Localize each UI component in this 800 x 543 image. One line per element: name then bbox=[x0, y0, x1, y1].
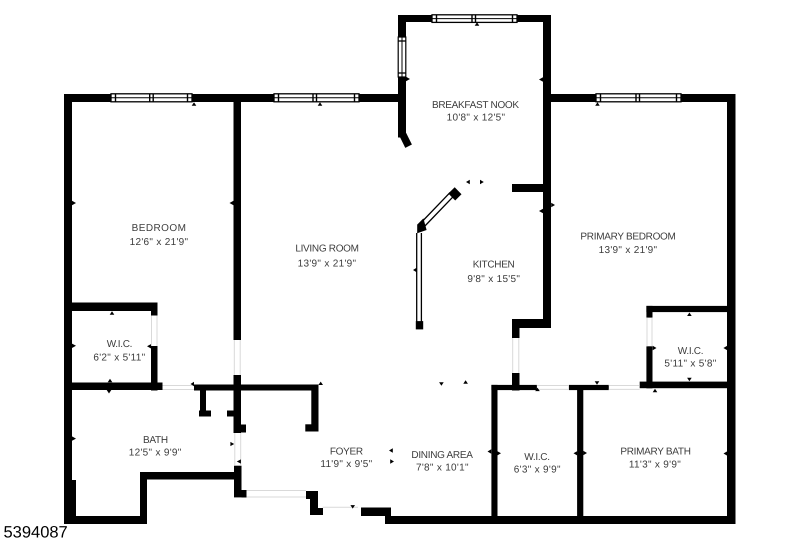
svg-text:BATH: BATH bbox=[143, 435, 168, 446]
svg-text:KITCHEN: KITCHEN bbox=[473, 260, 515, 271]
svg-text:13'9" x 21'9": 13'9" x 21'9" bbox=[599, 245, 658, 256]
svg-text:11'3" x 9'9": 11'3" x 9'9" bbox=[629, 459, 681, 470]
svg-text:10'8" x 12'5": 10'8" x 12'5" bbox=[447, 112, 506, 123]
svg-text:PRIMARY BEDROOM: PRIMARY BEDROOM bbox=[580, 231, 675, 242]
svg-text:12'6" x 21'9": 12'6" x 21'9" bbox=[130, 237, 189, 248]
svg-text:11'9" x 9'5": 11'9" x 9'5" bbox=[320, 459, 372, 470]
svg-text:5'11" x 5'8": 5'11" x 5'8" bbox=[664, 358, 716, 369]
svg-text:W.I.C.: W.I.C. bbox=[524, 452, 549, 463]
svg-text:6'2" x 5'11": 6'2" x 5'11" bbox=[93, 352, 145, 363]
svg-text:13'9" x 21'9": 13'9" x 21'9" bbox=[298, 258, 357, 269]
svg-text:BREAKFAST NOOK: BREAKFAST NOOK bbox=[432, 100, 519, 111]
svg-text:9'8" x 15'5": 9'8" x 15'5" bbox=[467, 274, 520, 285]
svg-text:BEDROOM: BEDROOM bbox=[132, 223, 187, 234]
svg-text:12'5" x 9'9": 12'5" x 9'9" bbox=[129, 447, 182, 458]
svg-text:W.I.C.: W.I.C. bbox=[107, 339, 132, 350]
svg-text:LIVING ROOM: LIVING ROOM bbox=[295, 244, 358, 255]
svg-text:FOYER: FOYER bbox=[330, 446, 363, 457]
svg-text:W.I.C.: W.I.C. bbox=[678, 346, 703, 357]
svg-text:5394087: 5394087 bbox=[4, 524, 68, 542]
svg-text:PRIMARY BATH: PRIMARY BATH bbox=[620, 447, 690, 458]
svg-text:7'8" x 10'1": 7'8" x 10'1" bbox=[416, 462, 469, 473]
svg-text:DINING AREA: DINING AREA bbox=[411, 450, 473, 461]
svg-text:6'3" x 9'9": 6'3" x 9'9" bbox=[514, 464, 561, 475]
